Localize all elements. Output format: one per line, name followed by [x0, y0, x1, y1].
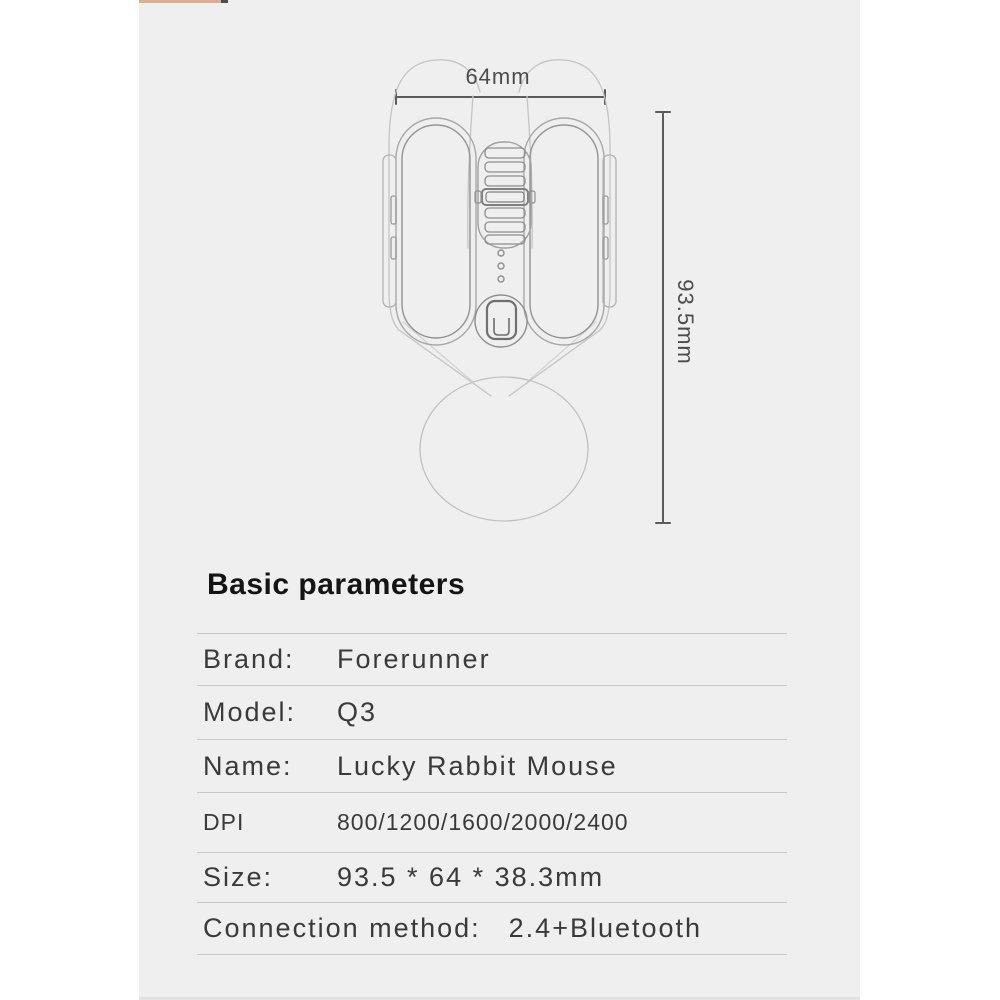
- row-label: Brand:: [197, 644, 337, 675]
- table-row-size: Size: 93.5 * 64 * 38.3mm: [197, 853, 787, 903]
- table-row-model: Model: Q3: [197, 686, 787, 740]
- right-click-button: [524, 118, 604, 345]
- height-dimension-label: 93.5mm: [672, 279, 698, 364]
- row-label: Size:: [197, 862, 337, 893]
- dpi-button: [475, 295, 527, 347]
- dpi-indicator-leds: [498, 250, 504, 282]
- row-value: 2.4+Bluetooth: [509, 913, 702, 944]
- mouse-body-outline: [389, 60, 610, 396]
- row-value: Lucky Rabbit Mouse: [337, 751, 618, 782]
- width-dimension-line: [396, 90, 605, 104]
- left-click-button: [396, 118, 476, 345]
- spec-table: Brand: Forerunner Model: Q3 Name: Lucky …: [197, 633, 787, 955]
- row-value: 800/1200/1600/2000/2400: [337, 809, 629, 836]
- row-value: Q3: [337, 697, 377, 728]
- height-dimension-line: [656, 112, 670, 523]
- content-panel: 64mm 93.5mm Basic parameters Brand: Fore…: [139, 0, 860, 1000]
- row-label: Model:: [197, 697, 337, 728]
- table-row-connection: Connection method: 2.4+Bluetooth: [197, 903, 787, 955]
- table-row-dpi: DPI 800/1200/1600/2000/2400: [197, 793, 787, 853]
- row-label: Connection method:: [197, 913, 481, 944]
- row-value: Forerunner: [337, 644, 491, 675]
- page-title: Basic parameters: [207, 568, 465, 602]
- row-label: Name:: [197, 751, 337, 782]
- table-row-name: Name: Lucky Rabbit Mouse: [197, 740, 787, 793]
- product-spec-image: 64mm 93.5mm Basic parameters Brand: Fore…: [0, 0, 1000, 1000]
- table-row-brand: Brand: Forerunner: [197, 634, 787, 686]
- scroll-wheel: [475, 142, 535, 248]
- row-value: 93.5 * 64 * 38.3mm: [337, 862, 604, 893]
- row-label: DPI: [197, 809, 337, 836]
- width-dimension-label: 64mm: [448, 64, 548, 90]
- palm-rest: [420, 377, 588, 521]
- mouse-body-inner-lines: [403, 322, 596, 382]
